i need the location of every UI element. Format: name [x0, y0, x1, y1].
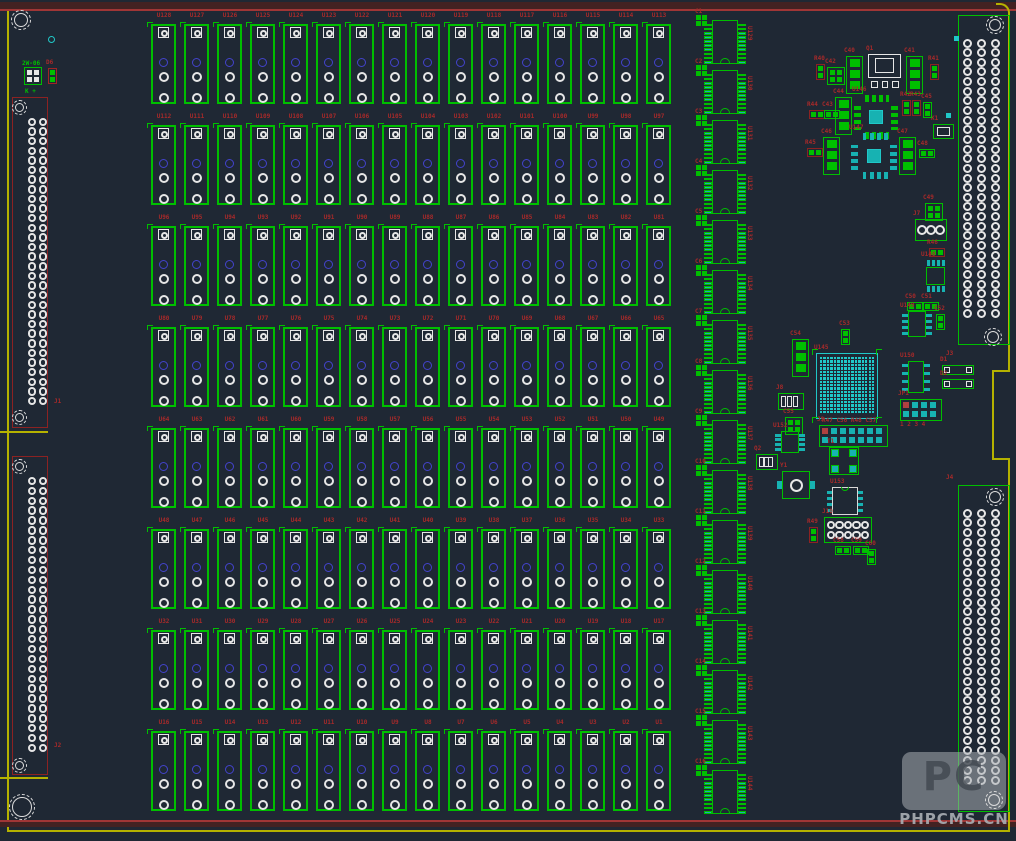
ic-pad: [738, 678, 746, 681]
relay-U78[interactable]: U78: [213, 315, 247, 411]
relay-U109[interactable]: U109: [246, 113, 280, 209]
relay-U93[interactable]: U93: [246, 214, 280, 310]
pcb-part: U61: [246, 416, 280, 423]
connector-J3[interactable]: [958, 15, 1010, 345]
relay-U55[interactable]: U55: [444, 416, 478, 512]
ic-pad: [704, 703, 712, 706]
pin1-notch: [345, 426, 351, 431]
relay-U18[interactable]: U18: [609, 618, 643, 714]
res2-R41[interactable]: R41: [930, 64, 932, 66]
res2-R42[interactable]: R42: [902, 100, 904, 102]
pcb-part: [823, 357, 825, 359]
soic8v-U148[interactable]: U148: [923, 260, 925, 262]
pad-hole: [977, 518, 986, 527]
pcb-part: [841, 394, 843, 396]
relay-U79[interactable]: U79: [180, 315, 214, 411]
relay-U72[interactable]: U72: [411, 315, 445, 411]
relay-U98[interactable]: U98: [609, 113, 643, 209]
cap4-C42[interactable]: C42: [827, 67, 829, 69]
relay-U75[interactable]: U75: [312, 315, 346, 411]
relay-U26[interactable]: U26: [345, 618, 379, 714]
soic8s-U150[interactable]: U150: [902, 361, 904, 363]
relay-U5[interactable]: U5: [510, 719, 544, 815]
xtal-Y1[interactable]: Y1: [782, 471, 784, 473]
relay-U128[interactable]: U128: [147, 12, 181, 108]
cap2-C43[interactable]: C43: [824, 110, 826, 112]
pcb-part: [837, 408, 839, 410]
pcb-part: [841, 371, 843, 373]
pad-square: [158, 431, 169, 442]
pad-hole: [159, 699, 169, 709]
pad-square: [620, 734, 631, 745]
pcb-part: U51: [576, 416, 610, 423]
pad-hole: [293, 131, 300, 138]
pad-hole: [225, 396, 235, 406]
cap2-C45[interactable]: C45: [923, 102, 925, 104]
relay-U70[interactable]: U70: [477, 315, 511, 411]
pad-hole: [963, 67, 972, 76]
relay-U49[interactable]: U49: [642, 416, 676, 512]
sot3-C41[interactable]: C41: [906, 56, 908, 58]
res2-R46[interactable]: R46: [929, 248, 931, 250]
relay-U7[interactable]: U7: [444, 719, 478, 815]
relay-U71[interactable]: U71: [444, 315, 478, 411]
relay-U95[interactable]: U95: [180, 214, 214, 310]
relay-U10[interactable]: U10: [345, 719, 379, 815]
pad-hole: [28, 127, 37, 136]
pad-hole: [28, 665, 37, 674]
relay-U56[interactable]: U56: [411, 416, 445, 512]
relay-U84[interactable]: U84: [543, 214, 577, 310]
sqheader-JP1[interactable]: JP1: [900, 399, 902, 401]
pcb-part: [827, 408, 829, 410]
relay-U91[interactable]: U91: [312, 214, 346, 310]
pcb-part: [781, 431, 799, 453]
relay-U113[interactable]: U113: [642, 12, 676, 108]
relay-U115[interactable]: U115: [576, 12, 610, 108]
pad-hole: [588, 577, 598, 587]
relay-U54[interactable]: U54: [477, 416, 511, 512]
pad-hole: [456, 375, 466, 385]
diode-D1[interactable]: D1: [942, 365, 944, 367]
pcb-part: [796, 364, 806, 372]
pad-hole: [293, 30, 300, 37]
relay-U73[interactable]: U73: [378, 315, 412, 411]
pad-hole: [991, 588, 1000, 597]
pad-hole: [357, 800, 367, 810]
relay-U8[interactable]: U8: [411, 719, 445, 815]
ic-pad: [738, 382, 746, 385]
pin1-notch: [213, 325, 219, 330]
relay-U125[interactable]: U125: [246, 12, 280, 108]
connector-J1[interactable]: [12, 97, 48, 428]
bga-U145[interactable]: U145: [816, 353, 818, 355]
pad-hole: [588, 800, 598, 810]
pad-hole: [28, 684, 37, 693]
relay-U13[interactable]: U13: [246, 719, 280, 815]
quad4-T1[interactable]: T1: [829, 447, 831, 449]
pcb-part: U20: [543, 618, 577, 625]
sqheader-J9[interactable]: J9: [819, 425, 821, 427]
relay-U1[interactable]: U1: [642, 719, 676, 815]
pin1-notch: [213, 224, 219, 229]
tab3-Q2[interactable]: Q2: [756, 454, 758, 456]
pad-hole: [258, 93, 268, 103]
relay-U57[interactable]: U57: [378, 416, 412, 512]
relay-U123[interactable]: U123: [312, 12, 346, 108]
relay-U31[interactable]: U31: [180, 618, 214, 714]
cap2-C58[interactable]: C58: [835, 546, 837, 548]
relay-U61[interactable]: U61: [246, 416, 280, 512]
pad-hole: [991, 736, 1000, 745]
relay-U30[interactable]: U30: [213, 618, 247, 714]
ref-label-C43: C43: [822, 101, 833, 108]
pcb-part: [910, 59, 920, 67]
pad-hole: [654, 779, 664, 789]
pcb-part: U42: [345, 517, 379, 524]
pad-hole: [192, 800, 202, 810]
pad-hole: [326, 535, 333, 542]
pcb-part: [820, 364, 822, 366]
pad-hole: [522, 295, 532, 305]
relay-U77[interactable]: U77: [246, 315, 280, 411]
relay-U106[interactable]: U106: [345, 113, 379, 209]
relay-U118[interactable]: U118: [477, 12, 511, 108]
relay-U35[interactable]: U35: [576, 517, 610, 613]
pad-square: [554, 27, 565, 38]
pad-square: [290, 229, 301, 240]
cap2-C52[interactable]: C52: [936, 314, 938, 316]
pad-hole: [423, 159, 432, 168]
diode-D2[interactable]: D2: [942, 379, 944, 381]
csq[interactable]: [946, 113, 948, 115]
pin1-notch: [378, 729, 384, 734]
pad-hole: [588, 58, 597, 67]
ic-pad: [738, 444, 746, 447]
relay-U105[interactable]: U105: [378, 113, 412, 209]
pcb-part: [855, 360, 857, 362]
soic8s-U149[interactable]: U149: [902, 311, 904, 313]
pcb-part: [926, 320, 932, 323]
relay-U58[interactable]: U58: [345, 416, 379, 512]
relay-U22[interactable]: U22: [477, 618, 511, 714]
relay-U38[interactable]: U38: [477, 517, 511, 613]
relay-U83[interactable]: U83: [576, 214, 610, 310]
pcb-part: [858, 364, 860, 366]
relay-U29[interactable]: U29: [246, 618, 280, 714]
pcb-part: [902, 326, 908, 329]
white2-K1[interactable]: K1: [933, 124, 935, 126]
header3-J7[interactable]: J7: [915, 219, 917, 221]
relay-U32[interactable]: U32: [147, 618, 181, 714]
relay-U76[interactable]: U76: [279, 315, 313, 411]
pcb-part: U105: [378, 113, 412, 120]
pcb-part: [851, 394, 853, 396]
pcb-part: U23: [444, 618, 478, 625]
relay-U44[interactable]: U44: [279, 517, 313, 613]
relay-U102[interactable]: U102: [477, 113, 511, 209]
relay-U4[interactable]: U4: [543, 719, 577, 815]
ref-label-C40: C40: [844, 47, 855, 54]
pin1-notch: [576, 123, 582, 128]
pad-hole: [390, 476, 400, 486]
pcb-part: [820, 367, 822, 369]
res2-R40[interactable]: R40: [816, 64, 818, 66]
pcb-part: 1 2 3 4: [900, 421, 925, 428]
pad-hole: [39, 118, 48, 127]
pcb-part: [820, 371, 822, 373]
pad-hole: [524, 131, 531, 138]
pin1-notch: [477, 628, 483, 633]
relay-U43[interactable]: U43: [312, 517, 346, 613]
ref-label-J8: J8: [776, 384, 783, 391]
pad-hole: [357, 274, 367, 284]
relay-U112[interactable]: U112: [147, 113, 181, 209]
relay-U100[interactable]: U100: [543, 113, 577, 209]
relay-U63[interactable]: U63: [180, 416, 214, 512]
relay-U20[interactable]: U20: [543, 618, 577, 714]
pcb-part: U90: [345, 214, 379, 221]
pcb-part: [820, 401, 822, 403]
relay-U59[interactable]: U59: [312, 416, 346, 512]
relay-U24[interactable]: U24: [411, 618, 445, 714]
relay-U17[interactable]: U17: [642, 618, 676, 714]
pcb-part: [855, 381, 857, 383]
relay-U62[interactable]: U62: [213, 416, 247, 512]
relay-U99[interactable]: U99: [576, 113, 610, 209]
relay-U15[interactable]: U15: [180, 719, 214, 815]
cap4-C49[interactable]: C49: [925, 203, 927, 205]
relay-U27[interactable]: U27: [312, 618, 346, 714]
res2-R45[interactable]: R45: [807, 148, 809, 150]
pad-hole: [423, 699, 433, 709]
relay-U39[interactable]: U39: [444, 517, 478, 613]
qfp-U147[interactable]: U147: [851, 133, 853, 135]
soic8s-U152[interactable]: U152: [775, 431, 777, 433]
pin1-notch: [279, 426, 285, 431]
pad-hole: [192, 295, 202, 305]
pad-hole: [423, 598, 433, 608]
relay-U67[interactable]: U67: [576, 315, 610, 411]
ic-U144[interactable]: C16U144: [695, 762, 759, 822]
cring[interactable]: [48, 36, 50, 38]
pad-hole: [28, 272, 37, 281]
relay-U11[interactable]: U11: [312, 719, 346, 815]
header10-J10[interactable]: J10: [824, 517, 826, 519]
sot3-C44[interactable]: C44: [835, 97, 837, 99]
csq[interactable]: [954, 36, 956, 38]
relay-U23[interactable]: U23: [444, 618, 478, 714]
pcb-part: [932, 286, 935, 292]
relay-U85[interactable]: U85: [510, 214, 544, 310]
pad-hole: [991, 231, 1000, 240]
relay-U6[interactable]: U6: [477, 719, 511, 815]
relay-U110[interactable]: U110: [213, 113, 247, 209]
relay-U90[interactable]: U90: [345, 214, 379, 310]
relay-U9[interactable]: U9: [378, 719, 412, 815]
relay-U69[interactable]: U69: [510, 315, 544, 411]
sot3-C40[interactable]: C40: [846, 56, 848, 58]
relay-U80[interactable]: U80: [147, 315, 181, 411]
relay-U126[interactable]: U126: [213, 12, 247, 108]
qfp-U146[interactable]: U146: [854, 95, 856, 97]
pad-hole: [991, 518, 1000, 527]
pad-hole: [491, 232, 498, 239]
relay-U51[interactable]: U51: [576, 416, 610, 512]
relay-U65[interactable]: U65: [642, 315, 676, 411]
pad-square: [323, 128, 334, 139]
relay-U82[interactable]: U82: [609, 214, 643, 310]
relay-U33[interactable]: U33: [642, 517, 676, 613]
pad-square: [158, 128, 169, 139]
tab3-J8[interactable]: J8: [778, 393, 780, 395]
relay-U114[interactable]: U114: [609, 12, 643, 108]
pad-hole: [159, 194, 169, 204]
pin1-notch: [477, 22, 483, 27]
sot3-C46[interactable]: C46: [823, 137, 825, 139]
relay-U119[interactable]: U119: [444, 12, 478, 108]
relay-U124[interactable]: U124: [279, 12, 313, 108]
relay-U116[interactable]: U116: [543, 12, 577, 108]
pcb-part: U95: [180, 214, 214, 221]
connector-J2[interactable]: [12, 456, 48, 775]
relay-U122[interactable]: U122: [345, 12, 379, 108]
relay-U104[interactable]: U104: [411, 113, 445, 209]
relay-U14[interactable]: U14: [213, 719, 247, 815]
relay-U52[interactable]: U52: [543, 416, 577, 512]
ref-label-C41: C41: [904, 47, 915, 54]
relay-U74[interactable]: U74: [345, 315, 379, 411]
res2-R49[interactable]: R49: [809, 527, 811, 529]
relay-U48[interactable]: U48: [147, 517, 181, 613]
cap2-C53[interactable]: C53: [841, 329, 843, 331]
relay-U86[interactable]: U86: [477, 214, 511, 310]
ic-pad: [704, 603, 712, 606]
pcb-part: [851, 408, 853, 410]
pin1-notch: [213, 527, 219, 532]
relay-U19[interactable]: U19: [576, 618, 610, 714]
relay-U28[interactable]: U28: [279, 618, 313, 714]
relay-U120[interactable]: U120: [411, 12, 445, 108]
relay-U16[interactable]: U16: [147, 719, 181, 815]
relay-U12[interactable]: U12: [279, 719, 313, 815]
pcb-part: U32: [147, 618, 181, 625]
relay-U108[interactable]: U108: [279, 113, 313, 209]
pad-hole: [324, 194, 334, 204]
relay-U42[interactable]: U42: [345, 517, 379, 613]
pcb-part: [827, 357, 829, 359]
pcb-part: [848, 401, 850, 403]
relay-U117[interactable]: U117: [510, 12, 544, 108]
relay-U25[interactable]: U25: [378, 618, 412, 714]
relay-U21[interactable]: U21: [510, 618, 544, 714]
relay-U101[interactable]: U101: [510, 113, 544, 209]
cap2-D6[interactable]: D6: [48, 68, 50, 70]
pad-square: [224, 27, 235, 38]
pin1-notch: [609, 527, 615, 532]
pcb-part: [841, 374, 843, 376]
pad-hole: [522, 274, 532, 284]
relay-U121[interactable]: U121: [378, 12, 412, 108]
pad-hole: [39, 378, 48, 387]
relay-U53[interactable]: U53: [510, 416, 544, 512]
relay-U41[interactable]: U41: [378, 517, 412, 613]
relay-U37[interactable]: U37: [510, 517, 544, 613]
pad-hole: [977, 87, 986, 96]
relay-U2[interactable]: U2: [609, 719, 643, 815]
relay-U92[interactable]: U92: [279, 214, 313, 310]
pad-hole: [28, 175, 37, 184]
cap4-C55[interactable]: C55: [785, 417, 787, 419]
relay-U46[interactable]: U46: [213, 517, 247, 613]
pcb-layout-canvas[interactable]: U128U127U126U125U124U123U122U121U120U119…: [0, 0, 1016, 841]
ref-label-Q1: Q1: [866, 45, 873, 52]
res2-R43[interactable]: R43: [912, 100, 914, 102]
relay-U89[interactable]: U89: [378, 214, 412, 310]
relay-U34[interactable]: U34: [609, 517, 643, 613]
pin1-notch: [609, 22, 615, 27]
relay-U81[interactable]: U81: [642, 214, 676, 310]
relay-U88[interactable]: U88: [411, 214, 445, 310]
cap4[interactable]: [24, 67, 26, 69]
relay-U96[interactable]: U96: [147, 214, 181, 310]
relay-U94[interactable]: U94: [213, 214, 247, 310]
sot3-C54[interactable]: C54: [792, 339, 794, 341]
relay-U66[interactable]: U66: [609, 315, 643, 411]
relay-U111[interactable]: U111: [180, 113, 214, 209]
pad-hole: [39, 605, 48, 614]
pcb-part: [834, 381, 836, 383]
dpak-Q1[interactable]: Q1: [868, 54, 870, 56]
relay-U47[interactable]: U47: [180, 517, 214, 613]
relay-U87[interactable]: U87: [444, 214, 478, 310]
pcb-part: [877, 133, 881, 140]
pad-hole: [225, 476, 235, 486]
relay-U3[interactable]: U3: [576, 719, 610, 815]
pad-square: [521, 431, 532, 442]
cap2-C60[interactable]: C60: [867, 549, 869, 551]
relay-U40[interactable]: U40: [411, 517, 445, 613]
pcb-part: [823, 398, 825, 400]
res2-R44[interactable]: R44: [809, 110, 811, 112]
relay-U107[interactable]: U107: [312, 113, 346, 209]
pcb-part: [862, 374, 864, 376]
cap2-C48[interactable]: C48: [919, 149, 921, 151]
ic-pad: [704, 207, 712, 210]
ic-pad: [704, 698, 712, 701]
pad-hole: [456, 295, 466, 305]
relay-U64[interactable]: U64: [147, 416, 181, 512]
relay-U68[interactable]: U68: [543, 315, 577, 411]
dip8-U153[interactable]: U153: [832, 487, 834, 489]
relay-U127[interactable]: U127: [180, 12, 214, 108]
sot3-C47[interactable]: C47: [899, 137, 901, 139]
relay-U97[interactable]: U97: [642, 113, 676, 209]
pad-hole: [390, 295, 400, 305]
pcb-part: U6: [477, 719, 511, 726]
relay-U103[interactable]: U103: [444, 113, 478, 209]
relay-U50[interactable]: U50: [609, 416, 643, 512]
pad-square: [356, 633, 367, 644]
cap2-C51[interactable]: C51: [923, 302, 925, 304]
relay-U36[interactable]: U36: [543, 517, 577, 613]
relay-U45[interactable]: U45: [246, 517, 280, 613]
pad-hole: [192, 72, 202, 82]
ref-label-R49: R49: [807, 518, 818, 525]
relay-U60[interactable]: U60: [279, 416, 313, 512]
cap2-C59[interactable]: C59: [853, 546, 855, 548]
pad-hole: [39, 224, 48, 233]
